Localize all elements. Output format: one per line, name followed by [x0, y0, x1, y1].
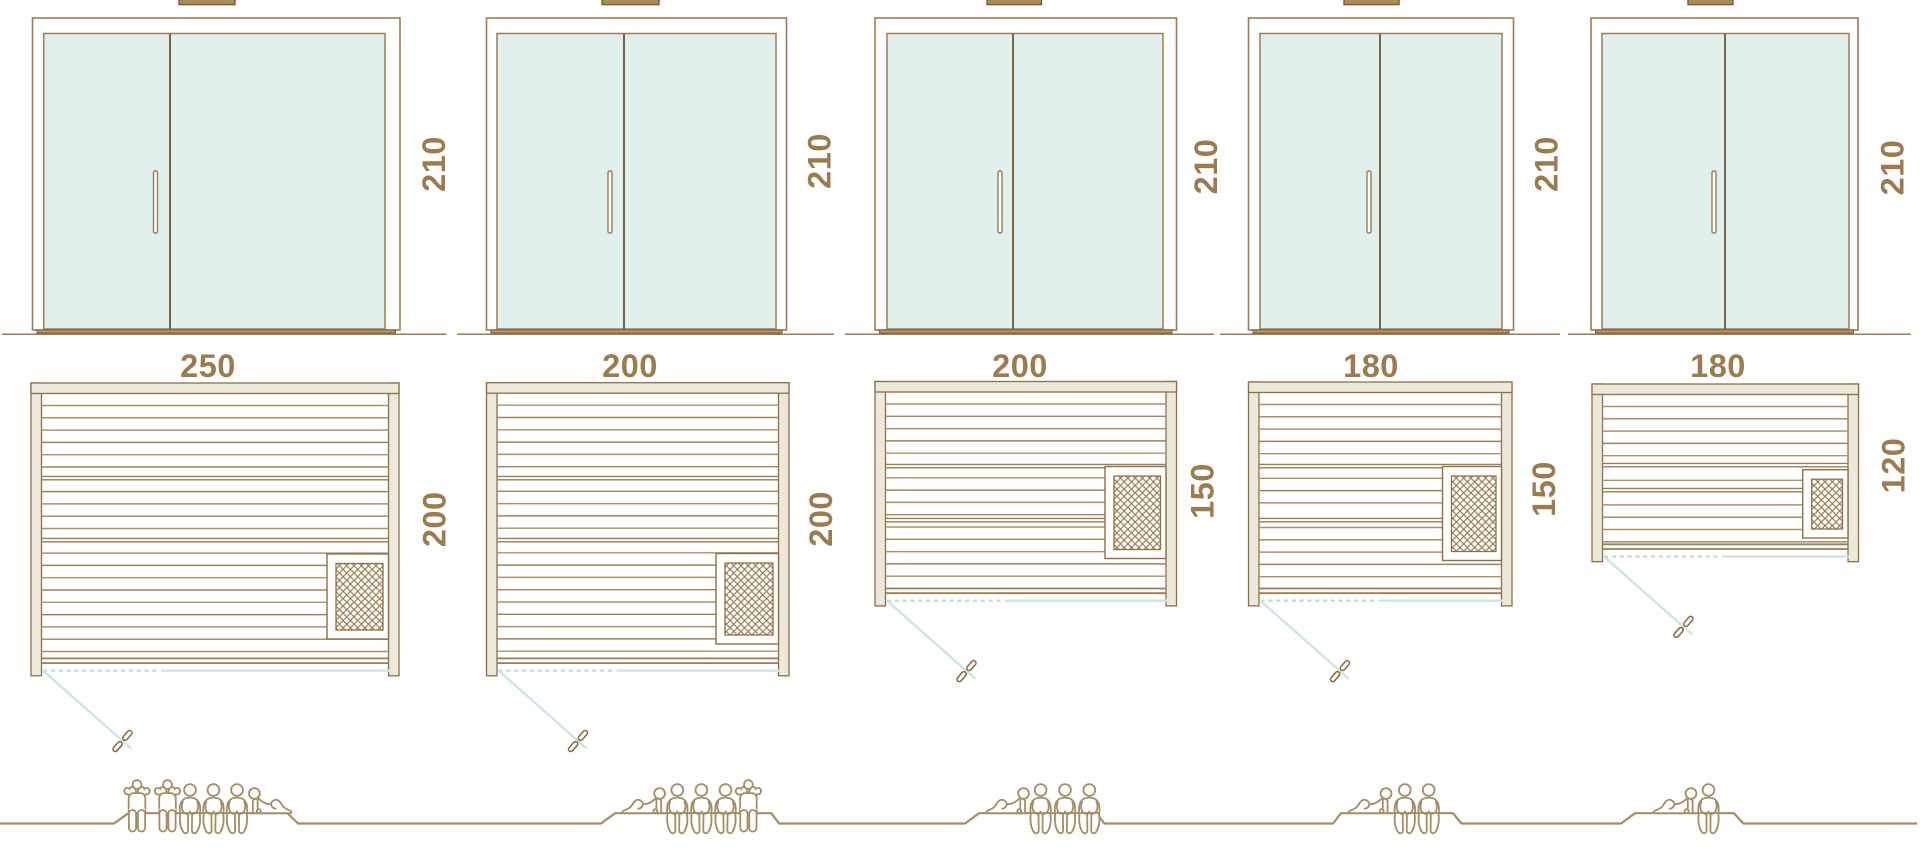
svg-text:200: 200 [602, 348, 658, 384]
svg-text:210: 210 [1188, 139, 1224, 195]
svg-text:250: 250 [180, 348, 236, 384]
svg-text:120: 120 [1876, 438, 1912, 494]
svg-text:200: 200 [803, 491, 839, 547]
svg-text:210: 210 [1875, 140, 1911, 196]
svg-text:150: 150 [1185, 463, 1221, 519]
svg-text:200: 200 [992, 348, 1048, 384]
svg-text:150: 150 [1526, 461, 1562, 517]
svg-text:180: 180 [1343, 348, 1399, 384]
svg-text:210: 210 [416, 136, 452, 192]
svg-text:210: 210 [802, 133, 838, 189]
svg-text:200: 200 [417, 491, 453, 547]
svg-text:210: 210 [1529, 136, 1565, 192]
svg-text:180: 180 [1690, 348, 1746, 384]
